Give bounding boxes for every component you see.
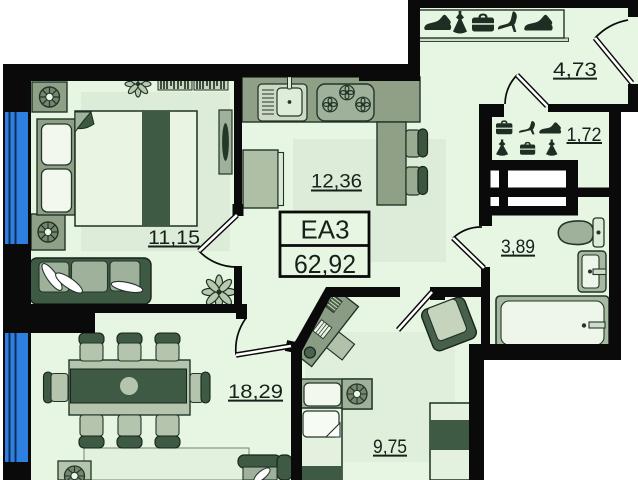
- svg-text:62,92: 62,92: [294, 249, 356, 279]
- svg-text:12,36: 12,36: [311, 172, 362, 193]
- svg-text:ЕА3: ЕА3: [301, 215, 350, 245]
